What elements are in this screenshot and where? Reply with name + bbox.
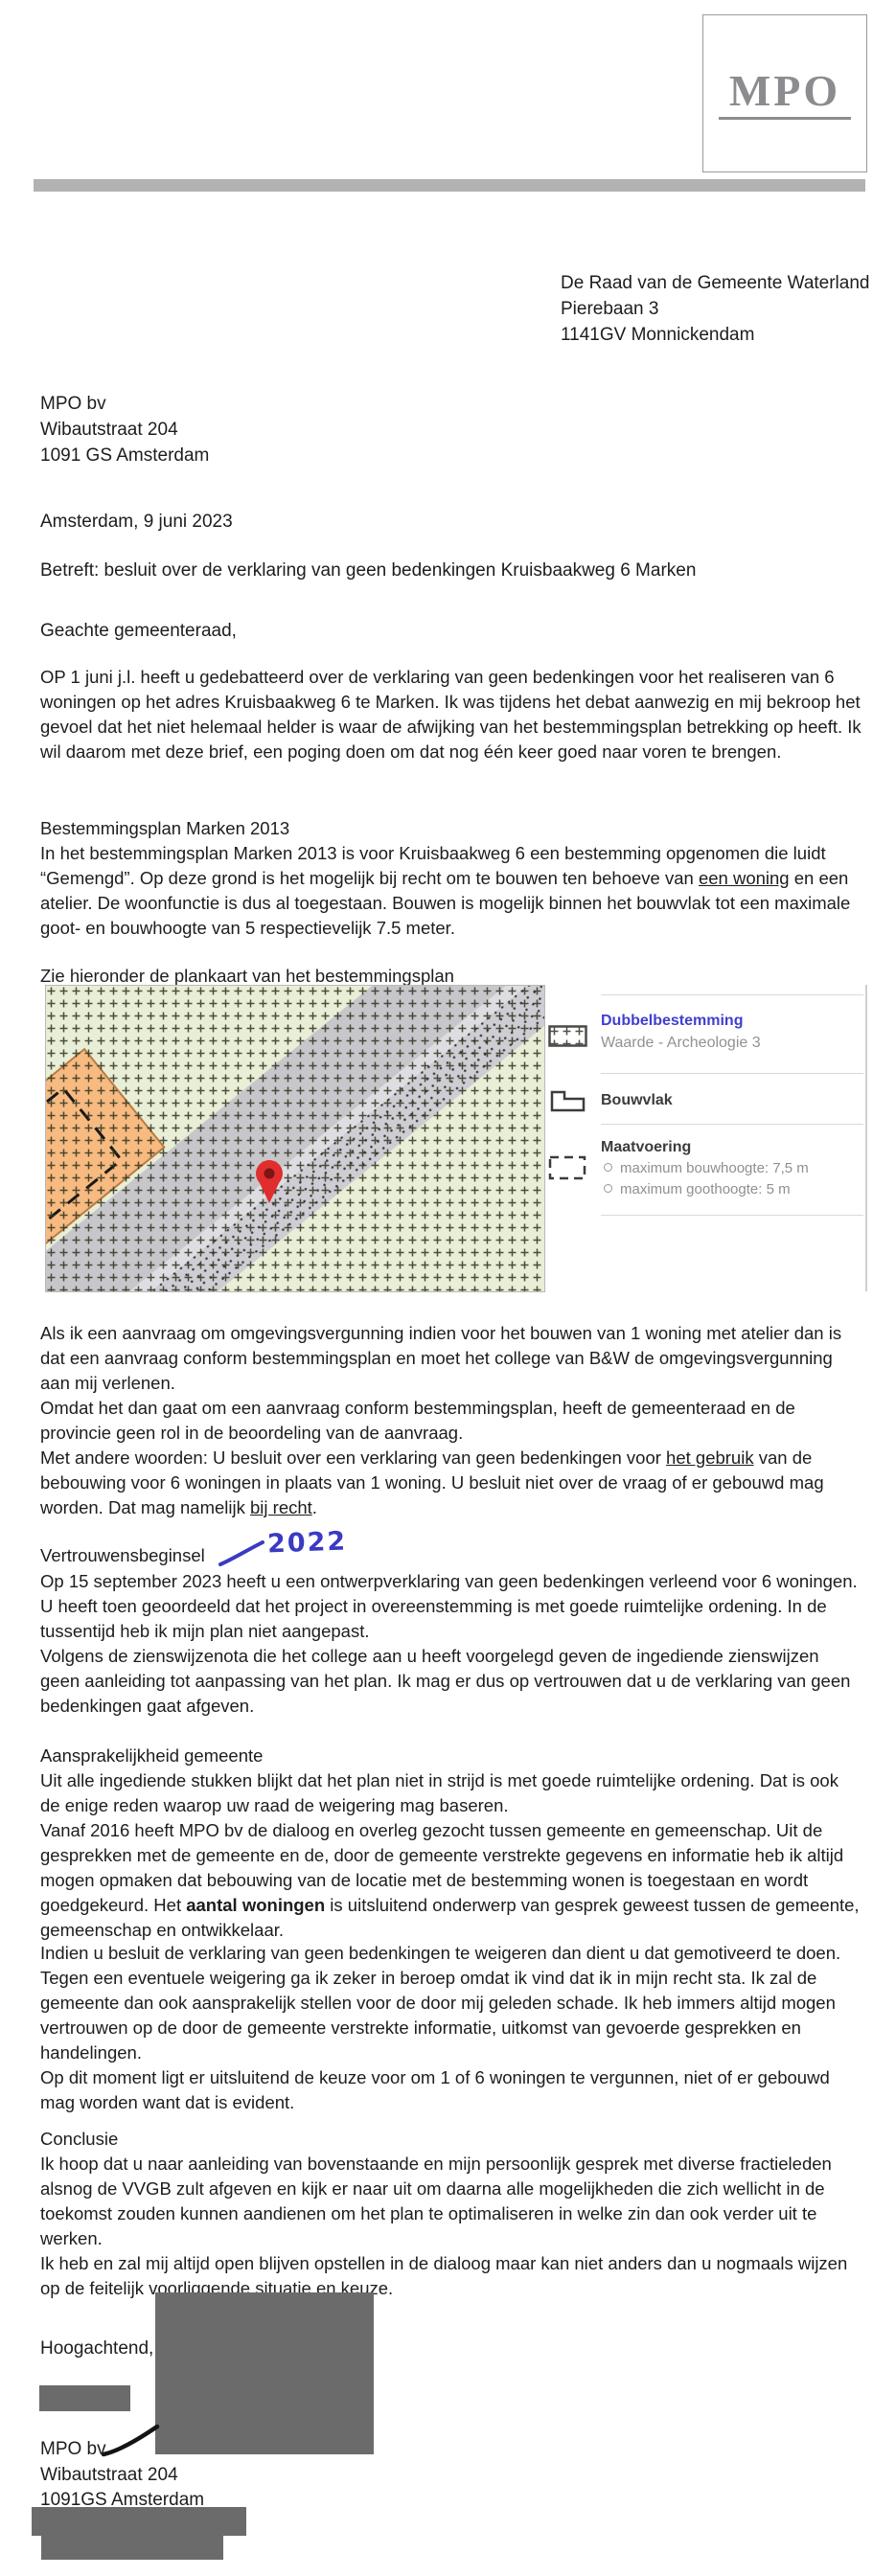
footer-redaction-box [41,2536,223,2560]
paragraph-vanaf-2016: Vanaf 2016 heeft MPO bv de dialoog en ov… [40,1818,862,1943]
legend-dubbelbestemming-title: Dubbelbestemming [601,1012,743,1031]
paragraph-op-dit-moment: Op dit moment ligt er uitsluitend de keu… [40,2065,862,2115]
footer-redaction-box [32,2507,246,2536]
mpo-logo-text: MPO [703,65,866,116]
date-line: Amsterdam, 9 juni 2023 [40,509,233,535]
legend-divider [601,994,863,995]
recipient-line: 1141GV Monnickendam [561,322,869,348]
sender-line: MPO bv [40,391,209,417]
paragraph-indien: Indien u besluit de verklaring van geen … [40,1941,862,2065]
underlined-text: een woning [699,868,790,888]
heading-aansprakelijkheid: Aansprakelijkheid gemeente [40,1744,263,1768]
legend-maatvoering-title: Maatvoering [601,1138,691,1157]
bullet-circle-icon [604,1184,612,1193]
mpo-logo-underline [719,117,851,120]
closing-hoogachtend: Hoogachtend, [40,2336,153,2361]
paragraph-met-andere-woorden: Met andere woorden: U besluit over een v… [40,1446,862,1520]
paragraph-aanvraag: Als ik een aanvraag om omgevingsvergunni… [40,1321,862,1396]
legend-divider [601,1124,863,1125]
annotation-2022: 2022 [266,1527,347,1560]
heading-bestemmingsplan: Bestemmingsplan Marken 2013 [40,816,289,841]
plan-map [45,985,545,1292]
signature-street: Wibautstraat 204 [40,2462,178,2488]
salutation: Geachte gemeenteraad, [40,618,237,644]
signature-company: MPO bv [40,2436,106,2462]
dubbelbestemming-icon [548,1025,587,1052]
bold-text: aantal woningen [186,1895,325,1915]
legend-dubbelbestemming-sub: Waarde - Archeologie 3 [601,1034,761,1053]
sender-line: 1091 GS Amsterdam [40,443,209,468]
name-redaction-box [39,2385,130,2411]
legend-maatvoering-item: maximum goothoogte: 5 m [604,1180,791,1199]
recipient-line: De Raad van de Gemeente Waterland [561,270,869,296]
recipient-line: Pierebaan 3 [561,296,869,322]
heading-conclusie: Conclusie [40,2127,118,2152]
sender-line: Wibautstraat 204 [40,417,209,443]
underlined-text: bij recht [250,1497,312,1517]
paragraph-ik-hoop: Ik hoop dat u naar aanleiding van bovens… [40,2152,862,2251]
legend-maatvoering-item: maximum bouwhoogte: 7,5 m [604,1159,809,1178]
legend-bouwvlak-title: Bouwvlak [601,1091,673,1110]
paragraph-uit-alle: Uit alle ingediende stukken blijkt dat h… [40,1768,862,1818]
paragraph-omdat: Omdat het dan gaat om een aanvraag confo… [40,1396,862,1446]
paragraph-bestemmingsplan: In het bestemmingsplan Marken 2013 is vo… [40,841,862,941]
mpo-logo-box: MPO [702,14,867,172]
bouwvlak-icon [548,1086,587,1118]
paragraph-intro: OP 1 juni j.l. heeft u gedebatteerd over… [40,665,862,764]
paragraph-volgens: Volgens de zienswijzenota die het colleg… [40,1644,862,1719]
map-plus-pattern-overlay [45,985,545,1292]
sender-address: MPO bv Wibautstraat 204 1091 GS Amsterda… [40,391,209,468]
bullet-circle-icon [604,1163,612,1172]
legend-scroll-track[interactable] [865,985,867,1291]
header-divider-bar [34,179,865,192]
legend-divider [601,1215,863,1216]
maatvoering-icon [548,1155,587,1186]
signature-redaction-box [155,2292,374,2454]
underlined-text: het gebruik [666,1448,754,1468]
letter-page: MPO De Raad van de Gemeente Waterland Pi… [0,0,896,2576]
subject-line: Betreft: besluit over de verklaring van … [40,558,696,583]
plan-map-image [45,985,545,1292]
heading-vertrouwensbeginsel: Vertrouwensbeginsel [40,1543,205,1568]
recipient-address: De Raad van de Gemeente Waterland Piereb… [561,270,869,348]
paragraph-op15: Op 15 september 2023 heeft u een ontwerp… [40,1569,862,1644]
legend-divider [601,1073,863,1074]
